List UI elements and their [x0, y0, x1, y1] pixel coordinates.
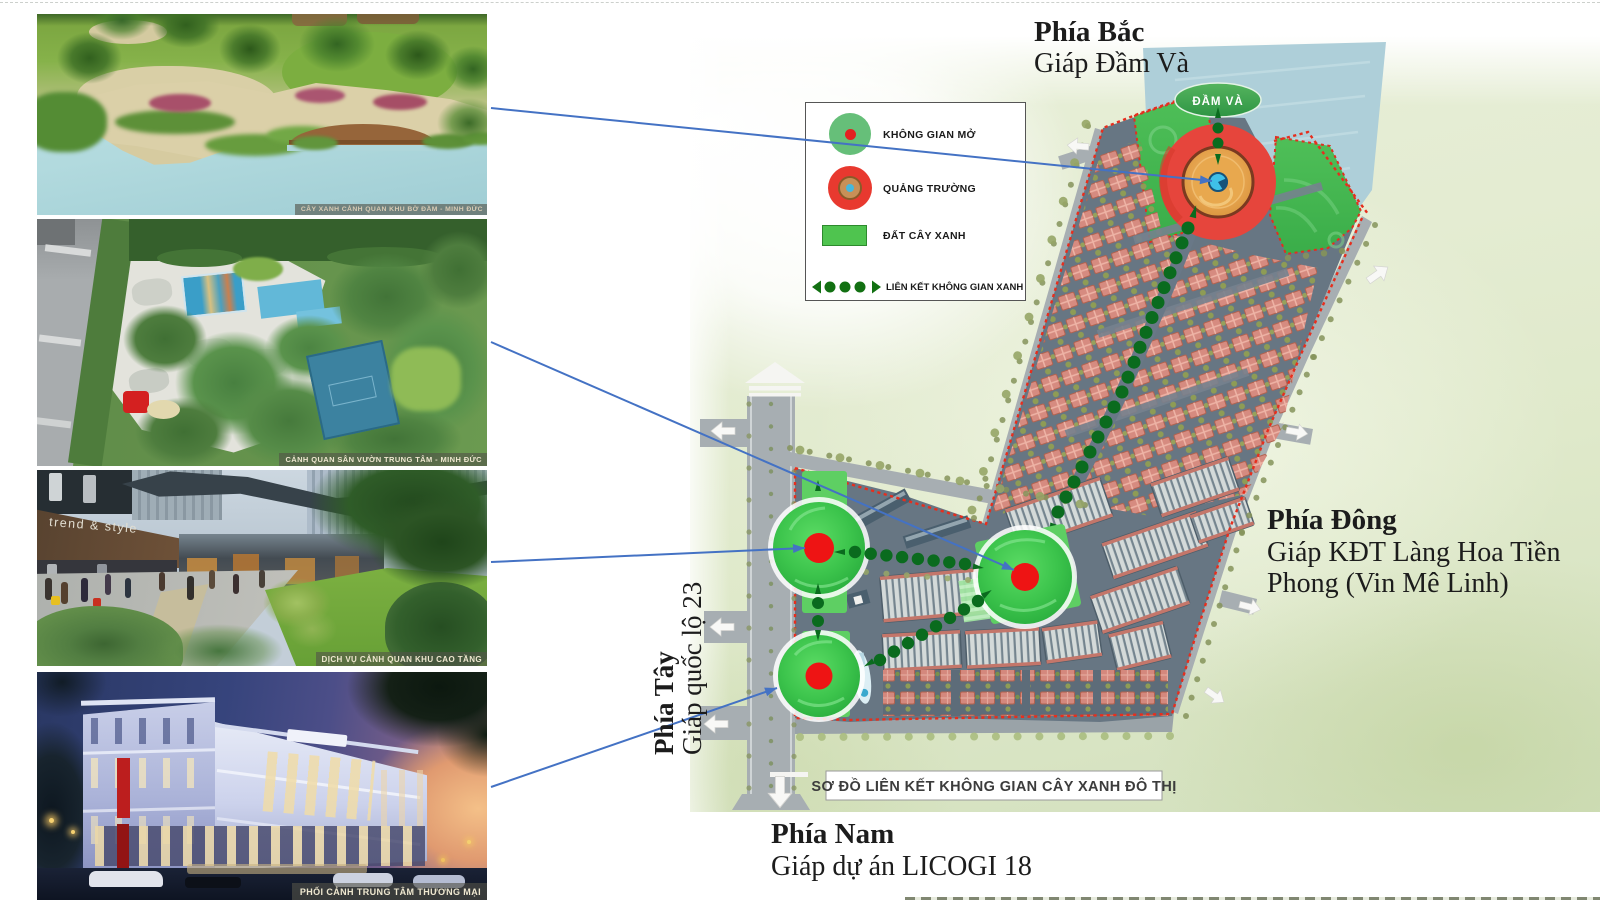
svg-text:SƠ ĐỒ LIÊN KẾT KHÔNG GIAN CÂY: SƠ ĐỒ LIÊN KẾT KHÔNG GIAN CÂY XANH ĐÔ TH…: [811, 777, 1176, 795]
svg-text:ĐẦM VÀ: ĐẦM VÀ: [1192, 95, 1243, 108]
